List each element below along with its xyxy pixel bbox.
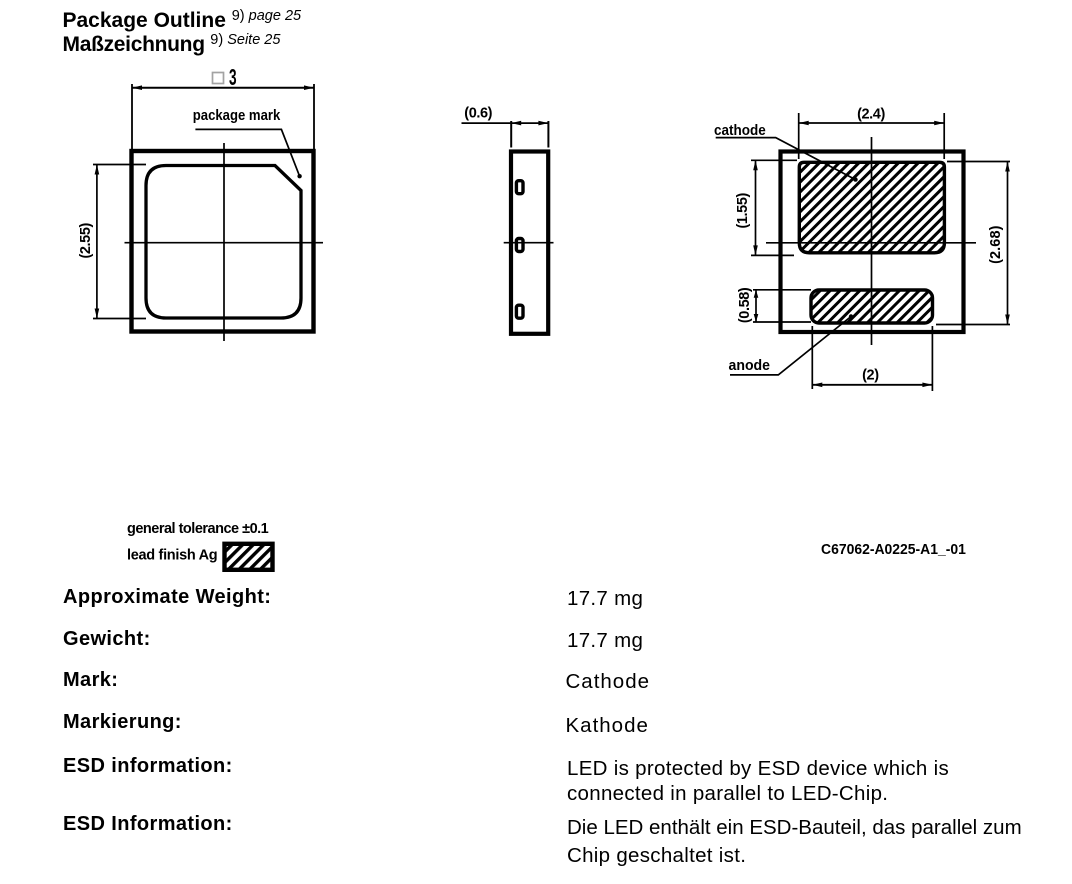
svg-text:lead finish Ag: lead finish Ag bbox=[127, 548, 217, 564]
svg-text:anode: anode bbox=[729, 358, 770, 374]
svg-text:(2.4): (2.4) bbox=[857, 107, 885, 123]
svg-text:C67062-A0225-A1_-01: C67062-A0225-A1_-01 bbox=[821, 541, 966, 558]
svg-text:3: 3 bbox=[229, 66, 237, 92]
svg-text:(2): (2) bbox=[862, 368, 879, 384]
svg-text:(1.55): (1.55) bbox=[735, 192, 751, 228]
svg-text:(0.58): (0.58) bbox=[737, 287, 753, 323]
svg-text:(2.68): (2.68) bbox=[988, 225, 1004, 264]
svg-text:general tolerance ±0.1: general tolerance ±0.1 bbox=[127, 521, 269, 537]
svg-text:(2.55): (2.55) bbox=[78, 222, 94, 258]
svg-text:(0.6): (0.6) bbox=[464, 105, 492, 121]
svg-text:cathode: cathode bbox=[714, 122, 766, 139]
svg-text:package mark: package mark bbox=[193, 106, 281, 123]
